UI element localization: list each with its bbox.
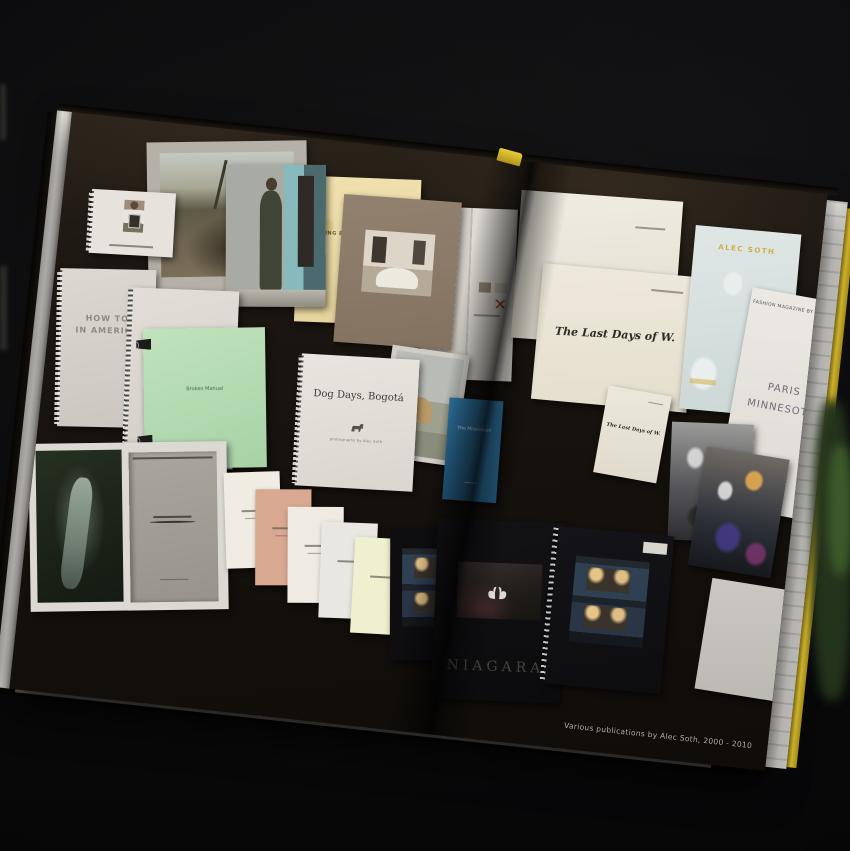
- window-shape: [371, 236, 387, 263]
- background-highlight: [0, 84, 6, 140]
- pub-brown-bedroom-book: [333, 194, 462, 350]
- pub-title: The Last Days of W.: [537, 324, 693, 346]
- micro-text-line: [133, 456, 213, 459]
- pub-dog-days-bogota: Dog Days, Bogotá photographs by Alec Sot…: [295, 353, 420, 491]
- micro-text-line: [153, 516, 191, 519]
- open-book: SLEEPING BY THE MISSISSIPPI: [9, 112, 827, 771]
- lit-window-shape: [586, 567, 631, 593]
- portrait-photo: [123, 200, 145, 233]
- pub-title: The Last Days of W.: [601, 421, 665, 438]
- underline-flourish: [149, 521, 195, 524]
- pub-title: Broken Manual: [144, 385, 266, 393]
- pub-title: Dog Days, Bogotá: [299, 387, 417, 405]
- ground-shape: [226, 290, 326, 307]
- figure-head: [266, 177, 277, 190]
- micro-text-line: [160, 578, 188, 580]
- bed-shape: [375, 267, 418, 290]
- pub-dark-spiral-book: [542, 526, 674, 694]
- pub-credit: photographs by Alec Soth: [297, 435, 415, 446]
- micro-text-line: [370, 576, 392, 579]
- pub-man-in-coveralls-book: [226, 165, 326, 307]
- background-highlight: [0, 266, 7, 350]
- binder-clip-icon: [136, 339, 151, 350]
- river-shape: [59, 477, 95, 591]
- pub-title-line1: HOW TO: [86, 314, 130, 324]
- pub-open-river-book: [28, 441, 228, 612]
- photo-backdrop: SLEEPING BY THE MISSISSIPPI: [0, 0, 850, 851]
- dateline-text-line: [635, 226, 665, 230]
- figure-head: [130, 201, 138, 209]
- bedroom-photo: [361, 230, 435, 297]
- window-shape: [412, 240, 426, 265]
- dateline-text-line: [648, 402, 663, 406]
- book-spread: SLEEPING BY THE MISSISSIPPI: [9, 112, 827, 771]
- pub-spiral-portrait-booklet: [89, 189, 176, 258]
- dog-silhouette-icon: [350, 418, 367, 431]
- motel-night-photo: [568, 556, 649, 648]
- river-photo: [35, 450, 123, 603]
- foliage-page-peek: [828, 445, 850, 575]
- lit-window-shape: [583, 605, 628, 631]
- doorway-shape: [298, 176, 314, 267]
- gold-text-fragment: [689, 378, 715, 385]
- framed-picture: [128, 214, 141, 229]
- gray-cover-page: [129, 451, 219, 602]
- white-label-sticker: [643, 542, 668, 555]
- dateline-text-line: [651, 289, 683, 293]
- pub-title-line1: PARIS: [767, 382, 802, 399]
- micro-text-line: [89, 243, 173, 250]
- pub-brand: ALEC SOTH: [694, 241, 800, 259]
- figure-body: [260, 190, 282, 289]
